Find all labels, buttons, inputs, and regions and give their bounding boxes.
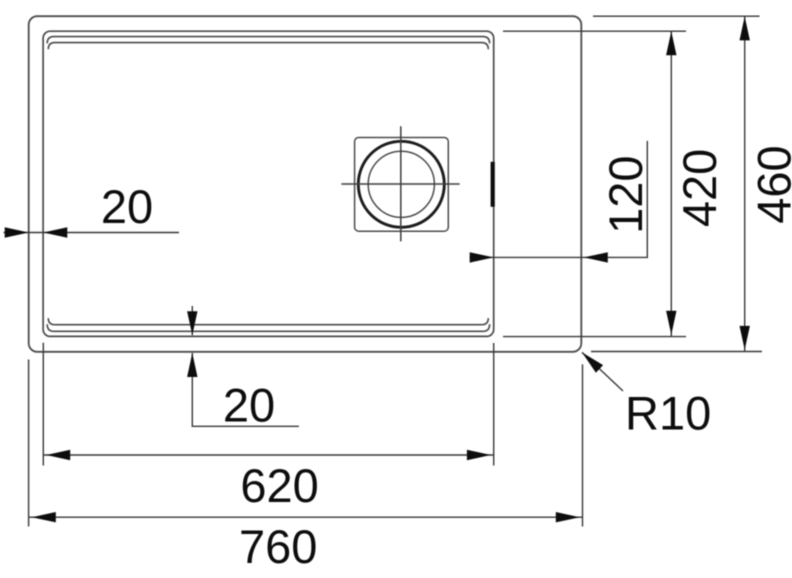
svg-text:760: 760 — [239, 520, 317, 573]
svg-text:620: 620 — [240, 459, 318, 512]
svg-text:20: 20 — [223, 379, 275, 432]
svg-text:R10: R10 — [625, 386, 711, 439]
svg-text:20: 20 — [101, 180, 153, 233]
svg-text:420: 420 — [673, 149, 726, 227]
svg-text:460: 460 — [748, 145, 792, 223]
svg-text:120: 120 — [599, 155, 652, 233]
